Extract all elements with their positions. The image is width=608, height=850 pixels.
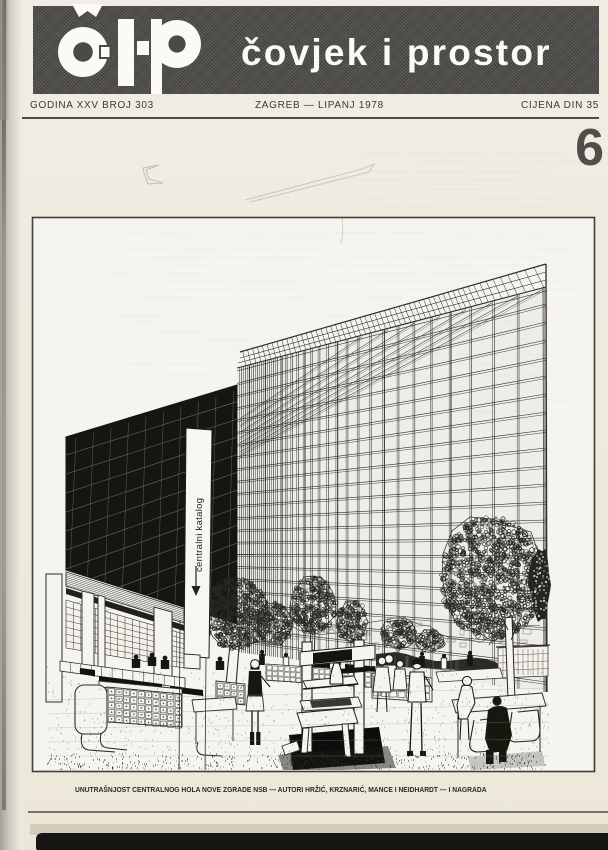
svg-text:centralni katalog: centralni katalog bbox=[194, 498, 205, 572]
